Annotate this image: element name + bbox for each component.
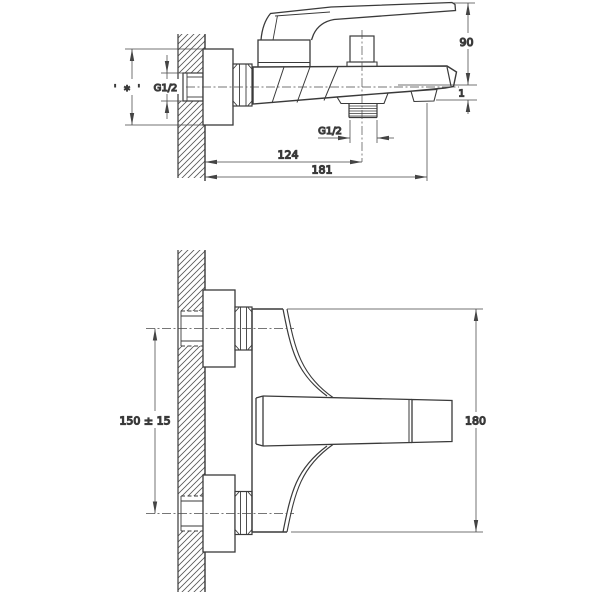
- handle-front: [256, 396, 452, 446]
- dim-overall-180: 180: [465, 415, 486, 428]
- faucet-dimension-drawing: ' ∗ ' G1/2 90 1 G1/2 124 181: [0, 0, 600, 600]
- dim-height-90: 90: [460, 36, 474, 49]
- handle-lever: [261, 3, 456, 41]
- dim-outlet-thread: G1/2: [318, 126, 342, 137]
- technical-drawing-canvas: ' ∗ ' G1/2 90 1 G1/2 124 181: [0, 0, 600, 600]
- wall-section-hatch-front: [178, 250, 205, 592]
- handle-base: [258, 40, 310, 67]
- dim-lip-1: 1: [458, 89, 464, 100]
- dim-inlet-marks: ' ∗ ': [114, 84, 142, 94]
- wall-section-hatch: [178, 34, 205, 178]
- dim-depth-181: 181: [312, 164, 333, 177]
- dim-depth-124: 124: [278, 149, 299, 162]
- dim-hole-spacing: 150 ± 15: [119, 415, 170, 428]
- hex-nut: [233, 64, 252, 106]
- faucet-body-front: [252, 309, 333, 532]
- front-view: 150 ± 15 180: [116, 250, 489, 592]
- side-projection-view: ' ∗ ' G1/2 90 1 G1/2 124 181: [114, 3, 477, 182]
- dim-inlet-thread: G1/2: [154, 83, 178, 94]
- spout-aerator: [411, 90, 437, 102]
